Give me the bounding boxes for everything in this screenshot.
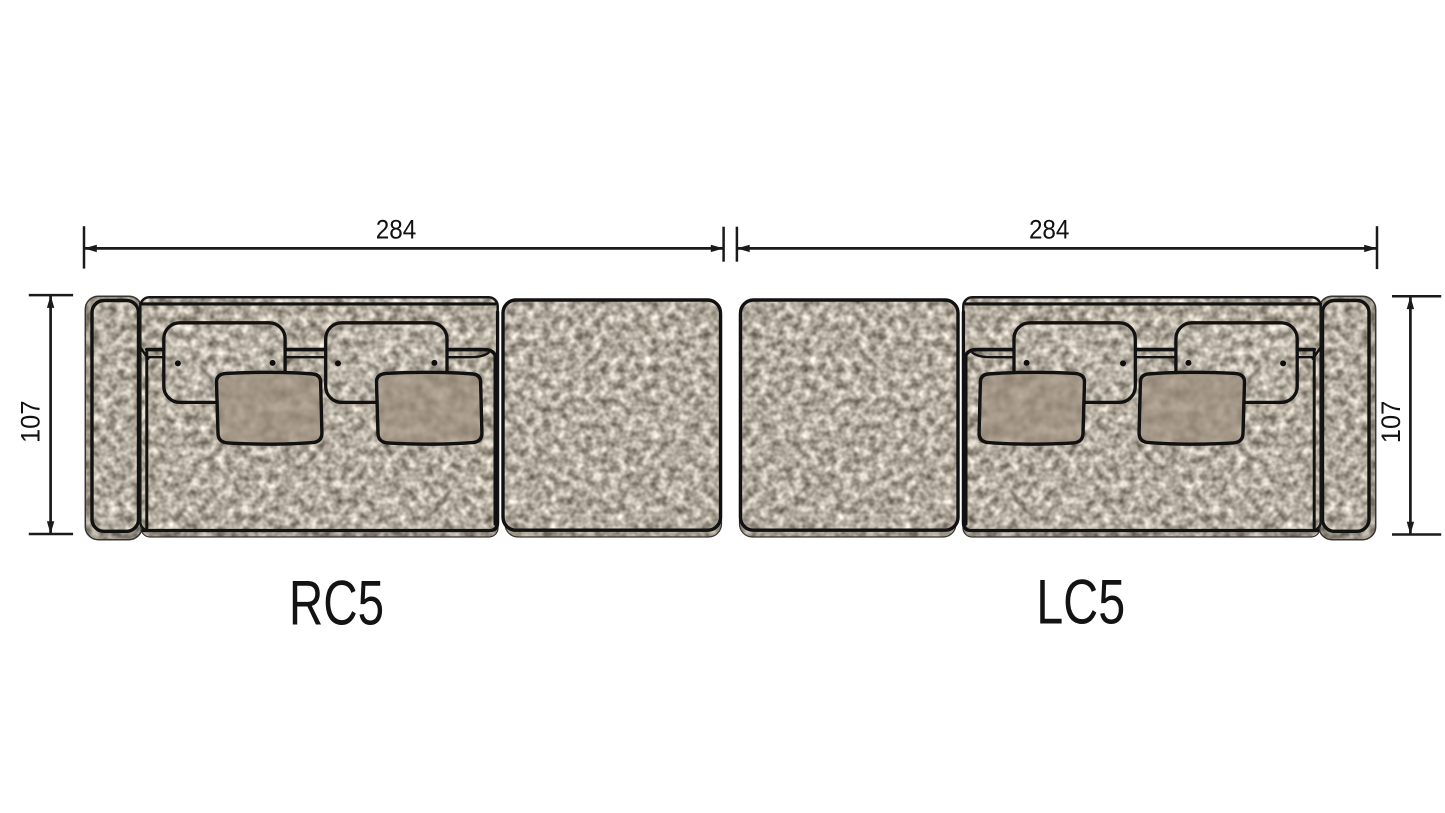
svg-text:107: 107 <box>1376 401 1406 444</box>
svg-text:RC5: RC5 <box>289 568 384 638</box>
svg-text:284: 284 <box>1029 214 1070 244</box>
svg-text:284: 284 <box>376 214 417 244</box>
svg-text:107: 107 <box>16 401 46 444</box>
svg-text:LC5: LC5 <box>1036 568 1125 638</box>
